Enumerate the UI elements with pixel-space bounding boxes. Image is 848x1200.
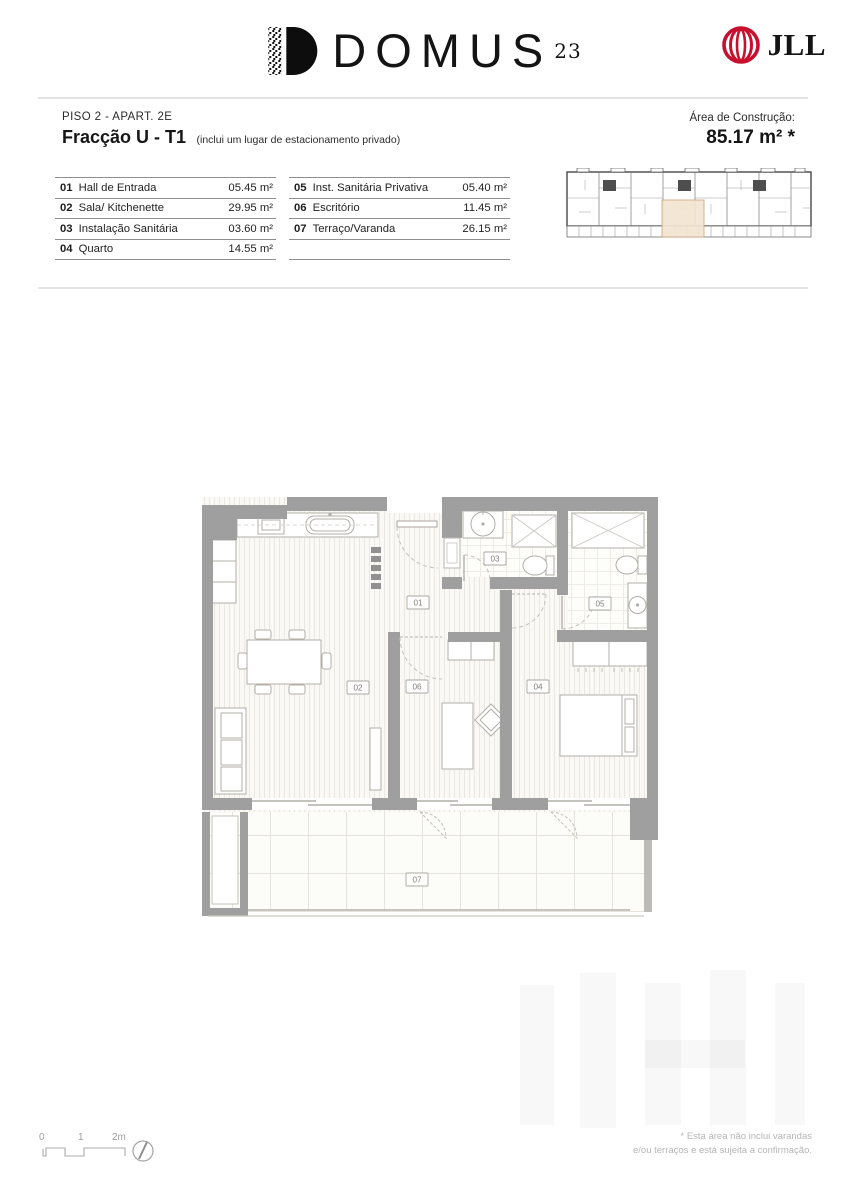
tv-sideboard xyxy=(370,728,381,790)
room-name: Instalação Sanitária xyxy=(79,223,178,235)
compass-icon xyxy=(133,1141,153,1161)
room-area: 29.95 m² xyxy=(228,202,273,214)
toilet xyxy=(638,556,647,574)
construction-area-value: 85.17 m² * xyxy=(690,127,795,149)
shelf-unit xyxy=(371,547,381,553)
room-area: 26.15 m² xyxy=(462,223,507,235)
room-label-02: 02 xyxy=(353,684,363,693)
room-label-01: 01 xyxy=(413,599,423,608)
desk xyxy=(442,703,473,769)
table-row: 07 Terraço/Varanda 26.15 m² xyxy=(289,219,510,240)
chair xyxy=(255,685,271,694)
room-name: Terraço/Varanda xyxy=(313,223,396,235)
room-area: 11.45 m² xyxy=(463,202,507,214)
room-area: 14.55 m² xyxy=(228,243,273,255)
table-row: 01 Hall de Entrada 05.45 m² xyxy=(55,178,276,199)
construction-area-block: Área de Construção: 85.17 m² * xyxy=(690,112,795,149)
room-area: 05.40 m² xyxy=(462,182,507,194)
apartment-floor-plan: 01 02 03 04 05 06 07 xyxy=(194,493,660,923)
room-name: Escritório xyxy=(313,202,360,214)
scale-tick-1: 1 xyxy=(78,1132,84,1143)
partner-name: JLL xyxy=(768,27,826,63)
room-number: 04 xyxy=(60,243,73,255)
room-label-03: 03 xyxy=(490,555,500,564)
area-disclaimer: * Esta área não inclui varandas e/ou ter… xyxy=(633,1130,812,1158)
room-number: 06 xyxy=(294,202,307,214)
room-name: Inst. Sanitária Privativa xyxy=(313,182,429,194)
entrance-door xyxy=(397,521,437,527)
room-name: Quarto xyxy=(79,243,114,255)
room-number: 03 xyxy=(60,223,73,235)
disclaimer-line-1: * Esta área não inclui varandas xyxy=(633,1130,812,1144)
domus-d-qr-icon xyxy=(266,24,320,78)
table-row-empty xyxy=(289,240,510,261)
room-area: 03.60 m² xyxy=(228,223,273,235)
room-label-07: 07 xyxy=(412,876,422,885)
dining-table xyxy=(247,640,321,684)
table-row: 05 Inst. Sanitária Privativa 05.40 m² xyxy=(289,178,510,199)
room-number: 05 xyxy=(294,182,307,194)
brand-sup: 23 xyxy=(554,39,581,63)
background-watermark xyxy=(505,955,835,1155)
chair xyxy=(255,630,271,639)
brand-name: DOMUS xyxy=(332,25,552,77)
room-number: 02 xyxy=(60,202,73,214)
scale-tick-0: 0 xyxy=(39,1132,45,1143)
jll-logo: JLL xyxy=(719,22,826,68)
floor-apartment-line: PISO 2 - APART. 2E xyxy=(62,111,172,123)
room-number: 07 xyxy=(294,223,307,235)
room-number: 01 xyxy=(60,182,73,194)
construction-area-label: Área de Construção: xyxy=(690,112,795,124)
room-name: Hall de Entrada xyxy=(79,182,157,194)
room-label-04: 04 xyxy=(533,683,543,692)
room-area: 05.45 m² xyxy=(228,182,273,194)
section-divider xyxy=(38,287,808,289)
chair xyxy=(238,653,247,669)
building-key-plan xyxy=(565,168,813,242)
fraction-name: Fracção U - T1 xyxy=(62,127,186,147)
room-table-left: 01 Hall de Entrada 05.45 m² 02 Sala/ Kit… xyxy=(55,177,276,260)
terrace-floor xyxy=(208,812,644,912)
table-row: 02 Sala/ Kitchenette 29.95 m² xyxy=(55,199,276,220)
scale-bar: 0 1 2m xyxy=(34,1128,164,1168)
room-name: Sala/ Kitchenette xyxy=(79,202,164,214)
planter xyxy=(212,816,238,904)
fraction-note: (inclui um lugar de estacionamento priva… xyxy=(197,134,401,146)
pillow xyxy=(625,699,634,724)
header-divider xyxy=(38,97,808,99)
wardrobe xyxy=(573,640,647,666)
floorplan-sheet: DOMUS23 JLL PISO 2 - APART. 2E Fracção U… xyxy=(0,0,848,1200)
table-row: 04 Quarto 14.55 m² xyxy=(55,240,276,261)
chair xyxy=(289,630,305,639)
chair xyxy=(289,685,305,694)
pillow xyxy=(625,727,634,752)
room-label-05: 05 xyxy=(595,600,605,609)
table-row: 06 Escritório 11.45 m² xyxy=(289,199,510,220)
disclaimer-line-2: e/ou terraços e está sujeita a confirmaç… xyxy=(633,1144,812,1158)
room-table-right: 05 Inst. Sanitária Privativa 05.40 m² 06… xyxy=(289,177,510,260)
scale-tick-2m: 2m xyxy=(112,1132,126,1143)
sliding-doors xyxy=(252,798,630,810)
chair xyxy=(322,653,331,669)
highlighted-unit xyxy=(662,200,704,237)
wall-niche xyxy=(444,538,460,568)
cabinet xyxy=(212,540,236,561)
room-label-06: 06 xyxy=(412,683,422,692)
jll-globe-icon xyxy=(719,22,763,68)
table-row: 03 Instalação Sanitária 03.60 m² xyxy=(55,219,276,240)
domus-logo: DOMUS23 xyxy=(266,24,581,78)
fraction-title: Fracção U - T1 (inclui um lugar de estac… xyxy=(62,127,400,148)
